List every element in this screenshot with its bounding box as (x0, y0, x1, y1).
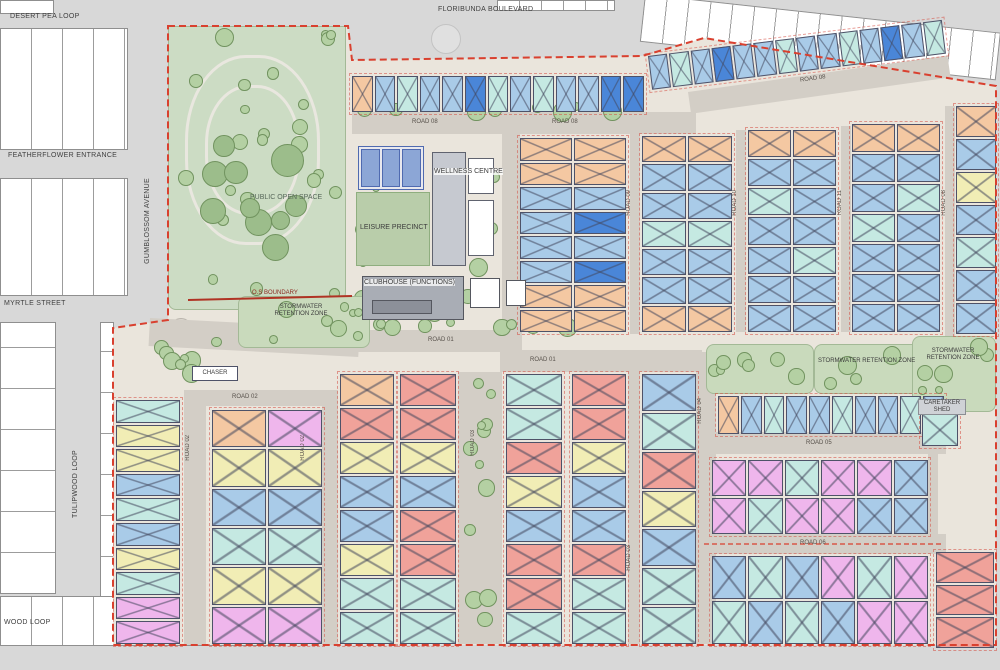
road-label: ROAD 01 (428, 337, 454, 343)
street-label: MYRTLE STREET (4, 300, 66, 307)
road-label: ROAD 03 (626, 545, 632, 571)
site-plan-map: PUBLIC OPEN SPACE LEISURE PRECINCT WELLN… (0, 0, 1000, 670)
road-label: ROAD 08 (412, 119, 438, 125)
public-open-space-label: PUBLIC OPEN SPACE (250, 194, 322, 201)
wellness-centre-label: WELLNESS CENTRE (434, 168, 503, 175)
road-label: ROAD 09 (626, 190, 632, 216)
road-label: ROAD 08 (552, 119, 578, 125)
road-label: ROAD 11 (837, 190, 843, 215)
road-label: ROAD 08 (800, 74, 826, 84)
road-label: ROAD 02 (232, 394, 258, 400)
stormwater-far-right-label: STORMWATER RETENTION ZONE (914, 348, 992, 362)
street-label: FLORIBUNDA BOULEVARD (438, 6, 533, 13)
road-label: ROAD 01 (530, 357, 556, 363)
road-label: ROAD 02 (185, 435, 191, 461)
os-boundary-label: O.S BOUNDARY (252, 290, 298, 296)
road-label: ROAD 08 (941, 190, 947, 216)
street-label: FEATHERFLOWER ENTRANCE (8, 152, 117, 159)
stormwater-right-label: STORMWATER RETENTION ZONE (818, 358, 915, 364)
road-label: ROAD 06 (800, 540, 826, 546)
leisure-precinct-label: LEISURE PRECINCT (360, 224, 428, 231)
clubhouse-label: CLUBHOUSE (FUNCTIONS) (364, 279, 455, 286)
road-label: ROAD 02 (300, 435, 306, 461)
road-label: ROAD 05 (806, 440, 832, 446)
street-label: TULIPWOOD LOOP (72, 450, 79, 518)
stormwater-left-label: STORMWATER RETENTION ZONE (258, 304, 344, 318)
road-label: ROAD 03 (470, 430, 476, 456)
labels-layer: PUBLIC OPEN SPACE LEISURE PRECINCT WELLN… (0, 0, 1000, 670)
road-label: ROAD 04 (697, 398, 703, 424)
chaser-label: CHASER (192, 366, 238, 381)
street-label: DESERT PEA LOOP (10, 13, 80, 20)
road-label: ROAD 10 (732, 190, 738, 216)
street-label: WOOD LOOP (4, 619, 51, 626)
street-label: GUMBLOSSOM AVENUE (144, 178, 151, 264)
caretaker-shed-label: CARETAKER SHED (918, 399, 966, 415)
